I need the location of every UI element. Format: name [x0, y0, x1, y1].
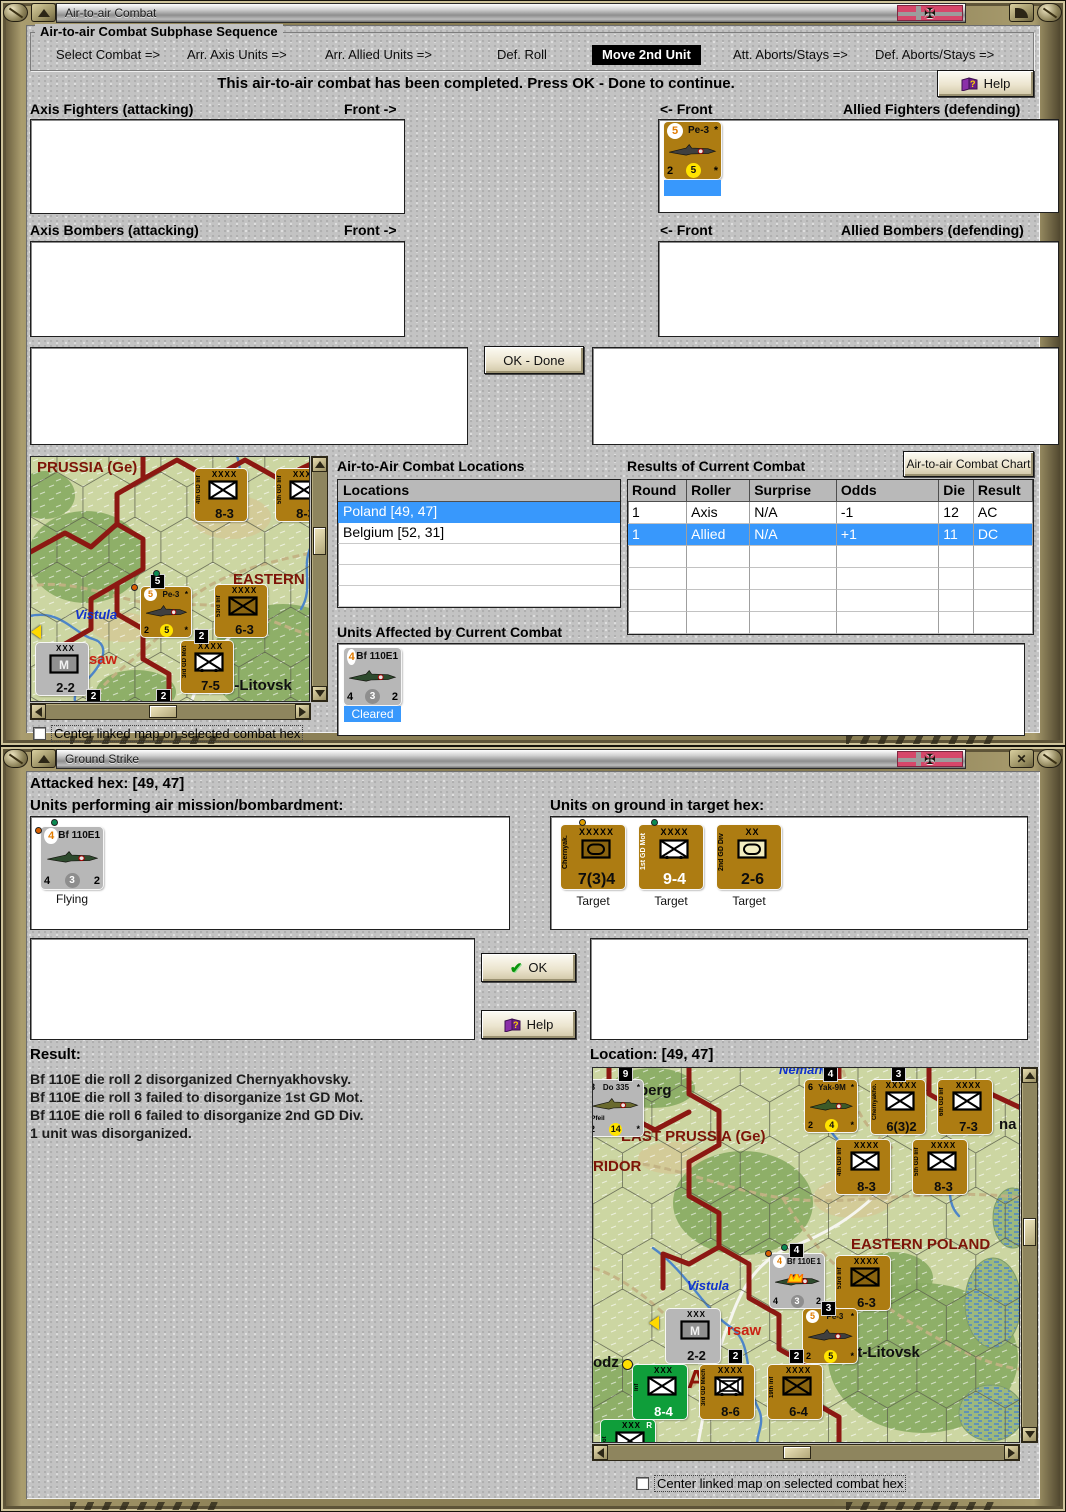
ground-unit-counter-5th-gd-inf[interactable]: XXXX5th GD Inf8-3: [913, 1140, 967, 1194]
mission-units-box[interactable]: 4Bf 110E1432Flying: [30, 816, 510, 930]
air-corner-mark: *: [851, 1083, 854, 1092]
results-col-roller: Roller: [687, 480, 750, 502]
air-strength-circle: 6: [808, 1082, 813, 1092]
ground-unit-counter-2-2[interactable]: XXXM2-2: [666, 1309, 720, 1363]
unit-status-label: Target: [639, 893, 703, 909]
air-range-circle: 4: [825, 1119, 838, 1132]
hex-control-badge: 4: [824, 1068, 837, 1081]
map-vscrollbar[interactable]: [311, 456, 328, 702]
results-col-result: Result: [974, 480, 1033, 502]
air-range-circle: 3: [65, 873, 80, 888]
air-strength-circle: 4: [347, 649, 356, 665]
unit-combat-values: 9-4: [646, 871, 703, 889]
air-attack-value: 4: [44, 875, 50, 887]
unit-symbol-icon: [194, 652, 224, 677]
stack-dot-icon: [781, 1244, 788, 1251]
scroll-thumb[interactable]: [783, 1446, 811, 1459]
combat-hex-map[interactable]: PRUSSIA (Ge)EASTERN PVistularsawst-Litov…: [30, 456, 310, 702]
center-map-checkbox[interactable]: [33, 727, 46, 740]
unit-combat-values: 8-6: [707, 1404, 754, 1419]
unit-status-label: Target: [717, 893, 781, 909]
air-range-circle: 3: [365, 689, 380, 704]
unit-symbol-icon: [208, 480, 238, 505]
air-corner-mark: *: [851, 1312, 854, 1321]
map-hscrollbar[interactable]: [30, 703, 311, 720]
air-unit-counter-pe-3[interactable]: 5Pe-3*25*: [803, 1309, 857, 1363]
hex-control-badge: 4: [790, 1244, 803, 1257]
unit-combat-values: 2-2: [43, 680, 88, 695]
unit-designation: 53rd Inf: [837, 1259, 845, 1297]
air-attack-value: 2: [667, 165, 673, 177]
subphase-step-3[interactable]: Arr. Allied Units =>: [325, 45, 432, 65]
allied-bombers-label: Allied Bombers (defending): [841, 222, 1024, 238]
ok-button[interactable]: ✔ OK: [481, 953, 576, 982]
hex-control-badge: 3: [822, 1302, 835, 1315]
air-combat-client: Air-to-air Combat Subphase Sequence Sele…: [26, 25, 1040, 733]
allied-fighters-label: Allied Fighters (defending): [843, 101, 1020, 117]
air-unit-counter-bf-110e[interactable]: 4Bf 110E1432: [770, 1254, 824, 1308]
air-range-circle: 3: [791, 1295, 804, 1308]
axis-bombers-box[interactable]: [30, 241, 405, 337]
unit-symbol-icon: [659, 839, 689, 864]
unit-size-label: XXXXX: [571, 827, 622, 837]
location-row-empty: [338, 544, 620, 565]
ground-unit-counter-3rd-gd-mot[interactable]: XXXX3rd GD Mot7-5: [181, 641, 233, 693]
help-button-2-label: Help: [527, 1017, 554, 1032]
mission-units-title: Units performing air mission/bombardment…: [30, 797, 343, 814]
strike-hex-map[interactable]: KbergNemanEAST PRUSSIA (Ge)RIDORnaEASTER…: [592, 1067, 1020, 1443]
stack-dot-icon: [51, 819, 58, 826]
help-book-icon: ?: [961, 77, 978, 91]
scroll-thumb[interactable]: [313, 527, 326, 555]
air-move-value: *: [850, 1120, 854, 1130]
screen: Air-to-air Combat ✠ Air-to-air Combat Su…: [0, 0, 1066, 1512]
strike-map-hscrollbar[interactable]: [592, 1444, 1020, 1461]
aircraft-silhouette-icon: [805, 1094, 857, 1118]
unit-designation: Chernyak.: [562, 828, 572, 876]
axis-fighters-box[interactable]: [30, 119, 405, 214]
hex-control-badge: 9: [619, 1068, 632, 1081]
air-unit-name: Pe-3: [688, 125, 709, 136]
window2-ornament-screw: [3, 749, 28, 768]
unit-designation: 53rd Inf: [216, 588, 224, 624]
window-title: Air-to-air Combat: [65, 6, 156, 20]
unit-combat-values: 8-4: [640, 1404, 687, 1419]
air-range-circle: 5: [824, 1350, 837, 1363]
subphase-group-title: Air-to-air Combat Subphase Sequence: [35, 24, 283, 39]
air-unit-counter-pe-3[interactable]: 5Pe-3*25*: [664, 122, 721, 179]
air-unit-name: Pe-3: [162, 590, 179, 599]
air-range-circle: 5: [160, 624, 173, 637]
unit-combat-values: 8-3: [283, 506, 310, 521]
units-affected-box[interactable]: 4Bf 110E1432Cleared: [337, 643, 1025, 736]
unit-symbol-icon: [850, 1151, 880, 1176]
unit-status-label: Cleared: [344, 706, 401, 722]
unit-symbol-icon: [952, 1091, 982, 1116]
center-map-checkbox-label: Center linked map on selected combat hex: [51, 725, 303, 742]
unit-status-label: Target: [561, 893, 625, 909]
ok-button-label: OK: [528, 960, 547, 975]
front-arrow-right-1: Front ->: [344, 101, 397, 117]
air-attack-value: 2: [806, 1351, 811, 1361]
unit-designation: 5th GD Inf: [914, 1143, 922, 1181]
unit-designation: [37, 646, 45, 682]
results-row-empty: [628, 590, 1033, 612]
ground-unit-counter-53rd-inf[interactable]: XXXX53rd Inf6-3: [836, 1256, 890, 1310]
svg-text:?: ?: [513, 1020, 519, 1030]
unit-designation: 4th GD Inf: [837, 1143, 845, 1181]
hex-control-badge: 2: [790, 1350, 803, 1363]
air-unit-name: Bf 110E: [787, 1257, 816, 1266]
combat-complete-message: This air-to-air combat has been complete…: [120, 75, 832, 92]
ground-unit-counter-inf[interactable]: XXXInf8-4: [633, 1365, 687, 1419]
aircraft-silhouette-icon: [770, 1268, 824, 1294]
unit-size-label: XXXX: [286, 470, 310, 479]
ground-unit-counter-chernyak-[interactable]: XXXXXChernyak.7(3)4: [561, 825, 625, 889]
unit-size-label: XXXX: [191, 642, 230, 651]
scroll-arrow-right-icon[interactable]: [295, 704, 310, 719]
air-corner-mark: *: [185, 590, 188, 599]
scroll-arrow-up-icon[interactable]: [1022, 1068, 1037, 1083]
results-col-die: Die: [939, 480, 974, 502]
unit-combat-values: 7-3: [945, 1119, 992, 1134]
air-move-value: 2: [816, 1296, 821, 1306]
unit-symbol-icon: [228, 596, 258, 621]
results-row-1[interactable]: 1AxisN/A-112AC: [628, 502, 1033, 524]
air-unit-counter-bf-110e[interactable]: 4Bf 110E1432: [344, 648, 401, 705]
unit-designation: Inf: [634, 1368, 642, 1406]
german-war-flag-icon: ✠: [897, 5, 963, 21]
ground-unit-counter-6th-gd-inf[interactable]: XXXX6th GD Inf7-3: [938, 1080, 992, 1134]
unit-designation: 4th GD Inf: [196, 472, 204, 508]
unit-size-label: XXXX: [710, 1366, 751, 1375]
unit-combat-values: 6-3: [843, 1295, 890, 1310]
aircraft-silhouette-icon: [41, 844, 103, 872]
results-col-odds: Odds: [837, 480, 939, 502]
subphase-step-1[interactable]: Select Combat =>: [56, 45, 160, 65]
stack-dot-icon: [153, 570, 160, 577]
unit-combat-values: 7-5: [188, 678, 233, 693]
unit-combat-values: 8-3: [920, 1179, 967, 1194]
results-row-empty: [628, 546, 1033, 568]
hex-control-badge: 2: [157, 690, 170, 702]
window2-title: Ground Strike: [65, 752, 139, 766]
unit-symbol-icon: [885, 1091, 915, 1116]
frame2-hatch-left: [70, 1502, 220, 1510]
scroll-arrow-down-icon[interactable]: [1022, 1427, 1037, 1442]
aircraft-silhouette-icon: [664, 139, 721, 162]
ground-unit-counter-4th-gd-inf[interactable]: XXXX4th GD Inf8-3: [836, 1140, 890, 1194]
air-unit-subname: Pfeil: [592, 1115, 643, 1122]
unit-status-label: [664, 180, 721, 196]
result-line-1: Bf 110E die roll 2 disorganized Chernyak…: [30, 1071, 351, 1087]
window2-titlebar[interactable]: Ground Strike ✠: [56, 749, 966, 769]
air-unit-name: Yak-9M: [818, 1083, 846, 1092]
hex-control-badge: 2: [195, 630, 208, 643]
air-strength-circle: 5: [806, 1310, 819, 1323]
ground-unit-counter-2nd-gd-div[interactable]: XX2nd GD Div2-6: [717, 825, 781, 889]
strike-left-box[interactable]: [30, 938, 475, 1040]
window2-shade-button[interactable]: [31, 749, 56, 768]
ground-unit-counter-mot[interactable]: XXXRMot8-4: [601, 1420, 655, 1443]
combat-chart-label: Air-to-air Combat Chart: [906, 457, 1030, 471]
unit-size-label: XXX: [46, 644, 85, 653]
unit-designation: 3rd GD Mot: [182, 644, 190, 680]
air-unit-name: Bf 110E: [58, 830, 94, 841]
combat-chart-button[interactable]: Air-to-air Combat Chart: [903, 451, 1034, 477]
result-title: Result:: [30, 1046, 81, 1063]
scroll-thumb[interactable]: [1023, 1218, 1036, 1246]
unit-symbol-icon: [581, 839, 611, 864]
center-map-checkbox-2-label: Center linked map on selected combat hex: [654, 1475, 906, 1492]
subphase-step-7[interactable]: Def. Aborts/Stays =>: [875, 45, 994, 65]
unit-combat-values: 6-3: [222, 622, 267, 637]
air-combat-window: Air-to-air Combat ✠ Air-to-air Combat Su…: [0, 0, 1066, 746]
unit-size-label: XXXX: [846, 1141, 887, 1150]
ground-unit-counter-53rd-inf[interactable]: XXXX53rd Inf6-3: [215, 585, 267, 637]
ground-unit-counter-4th-gd-inf[interactable]: XXXX4th GD Inf8-3: [195, 469, 247, 521]
front-arrow-left-1: <- Front: [660, 101, 713, 117]
unit-designation: 19th Inf: [769, 1368, 777, 1406]
air-attack-value: 2: [808, 1120, 813, 1130]
result-line-3: Bf 110E die roll 6 failed to disorganize…: [30, 1107, 363, 1123]
unit-combat-values: 8-3: [202, 506, 247, 521]
unit-size-label: XXXX: [846, 1257, 887, 1266]
unit-size-label: XXXX: [778, 1366, 819, 1375]
air-unit-counter-yak-9m[interactable]: 6Yak-9M*24*: [805, 1080, 857, 1132]
subphase-step-2[interactable]: Arr. Axis Units =>: [187, 45, 287, 65]
air-strength-circle: 5: [144, 588, 157, 601]
air-strength-circle: 8: [592, 1082, 595, 1092]
subphase-step-4[interactable]: Def. Roll: [497, 45, 547, 65]
hex-control-badge: 2: [729, 1350, 742, 1363]
location-row-1[interactable]: Poland [49, 47]: [338, 502, 620, 523]
unit-size-label: XX: [727, 827, 778, 837]
scroll-thumb[interactable]: [149, 705, 177, 718]
unit-symbol-icon: M: [49, 654, 79, 679]
help-button-2[interactable]: ? Help: [481, 1010, 576, 1039]
air-attack-value: 4: [347, 691, 353, 703]
scroll-arrow-up-icon[interactable]: [312, 457, 327, 472]
unit-combat-values: 6(3)2: [878, 1119, 925, 1134]
results-header-row: RoundRollerSurpriseOddsDieResult: [628, 480, 1033, 502]
air-attack-value: 2: [144, 625, 149, 635]
air-move-value: 2: [94, 875, 100, 887]
unit-designation: 5th GD Inf: [277, 472, 285, 508]
help-book-icon-2: ?: [504, 1018, 521, 1032]
air-corner-mark: 1: [817, 1257, 821, 1266]
air-unit-name: Bf 110E: [356, 651, 392, 662]
center-map-checkbox-row-2: Center linked map on selected combat hex: [636, 1475, 906, 1492]
front-arrow-left-2: <- Front: [660, 222, 713, 238]
ground-unit-counter-1st-gd-mot[interactable]: XXXX1st GD Mot9-4: [639, 825, 703, 889]
locations-title: Air-to-Air Combat Locations: [337, 458, 524, 474]
unit-designation: 3rd GD Mech: [701, 1368, 709, 1406]
unit-designation: 2nd GD Div: [718, 828, 728, 876]
unit-size-label: XXXX: [948, 1081, 989, 1090]
stack-dot-icon: [35, 827, 42, 834]
ground-unit-counter-3rd-gd-mech[interactable]: XXXX3rd GD Mech8-6: [700, 1365, 754, 1419]
stack-dot-icon: [651, 819, 658, 826]
hex-control-badge: 2: [87, 690, 100, 702]
center-map-checkbox-row: Center linked map on selected combat hex: [33, 725, 303, 742]
scroll-arrow-down-icon[interactable]: [312, 686, 327, 701]
air-unit-counter-bf-110e[interactable]: 4Bf 110E1432: [41, 827, 103, 889]
air-strength-circle: 5: [667, 123, 683, 139]
front-arrow-right-2: Front ->: [344, 222, 397, 238]
location-label: Location: [49, 47]: [590, 1046, 713, 1063]
result-line-4: 1 unit was disorganized.: [30, 1125, 192, 1141]
unit-designation: 1st GD Mot: [640, 828, 650, 876]
air-move-value: *: [636, 1124, 640, 1134]
location-row-empty: [338, 586, 620, 607]
window2-close-button[interactable]: ✕: [1009, 749, 1034, 768]
air-attack-value: 2: [592, 1124, 595, 1134]
air-corner-mark: *: [637, 1083, 640, 1092]
results-title: Results of Current Combat: [627, 458, 805, 474]
ground-unit-counter-19th-inf[interactable]: XXXX19th Inf6-4: [768, 1365, 822, 1419]
unit-symbol-icon: [850, 1267, 880, 1292]
city-dot-icon: [622, 1359, 633, 1370]
attacked-hex-label: Attacked hex: [49, 47]: [30, 775, 184, 792]
air-attack-value: 4: [773, 1296, 778, 1306]
help-button-label: Help: [984, 76, 1011, 91]
strike-map-vscrollbar[interactable]: [1021, 1067, 1038, 1443]
scroll-arrow-left-icon[interactable]: [31, 704, 46, 719]
ground-units-box[interactable]: XXXXXChernyak.7(3)4TargetXXXX1st GD Mot9…: [550, 816, 1028, 930]
unit-designation: Mot: [602, 1423, 610, 1443]
location-row-2[interactable]: Belgium [52, 31]: [338, 523, 620, 544]
window2-ornament-screw-right: [1037, 749, 1062, 768]
window-titlebar[interactable]: Air-to-air Combat ✠: [56, 3, 966, 23]
ground-strike-client: Attacked hex: [49, 47] Units performing …: [26, 771, 1040, 1499]
window-shade-button[interactable]: [31, 3, 56, 22]
unit-combat-values: 2-2: [673, 1348, 720, 1363]
frame-hatch-right: [846, 736, 996, 744]
strike-right-box[interactable]: [590, 938, 1028, 1040]
ground-unit-counter-5th-gd-inf[interactable]: XXXX5th GD Inf8-3: [276, 469, 310, 521]
hex-control-badge: 5: [151, 575, 164, 588]
units-affected-title: Units Affected by Current Combat: [337, 624, 562, 640]
unit-symbol-icon: [714, 1376, 744, 1401]
unit-symbol-icon: [927, 1151, 957, 1176]
locations-header: Locations: [338, 480, 620, 502]
axis-bombers-label: Axis Bombers (attacking): [30, 222, 199, 238]
offmap-chevron-icon: [31, 625, 41, 639]
ground-unit-counter-chernyakho-[interactable]: XXXXXChernyakho.6(3)2: [871, 1080, 925, 1134]
stack-dot-icon: [765, 1250, 772, 1257]
ground-strike-window: Ground Strike ✠ ✕ Attacked hex: [49, 47]…: [0, 746, 1066, 1512]
air-unit-counter-pe-3[interactable]: 5Pe-3*25*: [141, 587, 191, 637]
hex-control-badge: 3: [892, 1068, 905, 1081]
unit-symbol-icon: [615, 1431, 645, 1443]
unit-size-label: XXX: [676, 1310, 717, 1319]
results-row-2[interactable]: 1AlliedN/A+111DC: [628, 524, 1033, 546]
unit-size-label: XXXX: [225, 586, 264, 595]
aircraft-silhouette-icon: [141, 601, 191, 623]
air-unit-name: Do 335: [603, 1083, 629, 1092]
air-range-circle: 14: [609, 1123, 622, 1136]
results-col-round: Round: [628, 480, 687, 502]
unit-designation: 6th GD Inf: [939, 1083, 947, 1121]
unit-symbol-icon: [289, 480, 310, 505]
unit-size-label: XXXX: [205, 470, 244, 479]
ground-unit-counter-2-2[interactable]: XXXM2-2: [36, 643, 88, 695]
window-minimize-button[interactable]: [1009, 3, 1034, 22]
aircraft-silhouette-icon: [592, 1094, 643, 1115]
results-row-empty: [628, 612, 1033, 634]
unit-size-label: XXXX: [649, 827, 700, 837]
subphase-step-6[interactable]: Att. Aborts/Stays =>: [733, 45, 848, 65]
unit-size-label: XXXXX: [881, 1081, 922, 1090]
air-corner-mark: 1: [94, 830, 100, 841]
air-corner-mark: 1: [392, 651, 398, 662]
unit-combat-values: 6-4: [775, 1404, 822, 1419]
ok-check-icon: ✔: [510, 959, 523, 977]
air-move-value: 2: [392, 691, 398, 703]
aircraft-silhouette-icon: [803, 1323, 857, 1349]
help-button[interactable]: ? Help: [937, 70, 1034, 97]
unit-symbol-icon: [647, 1376, 677, 1401]
window-ornament-screw: [3, 3, 28, 22]
allied-message-box[interactable]: [592, 347, 1059, 445]
svg-text:M: M: [690, 1324, 700, 1338]
allied-bombers-box[interactable]: [658, 241, 1059, 337]
unit-designation: [667, 1312, 675, 1350]
air-corner-mark: *: [714, 125, 718, 136]
center-map-checkbox-2[interactable]: [636, 1477, 649, 1490]
offmap-chevron-icon: [649, 1316, 659, 1330]
axis-fighters-label: Axis Fighters (attacking): [30, 101, 193, 117]
unit-corner-mark: R: [646, 1421, 652, 1430]
ground-units-title: Units on ground in target hex:: [550, 797, 764, 814]
scroll-arrow-right-icon[interactable]: [1004, 1445, 1019, 1460]
svg-text:M: M: [59, 658, 69, 672]
unit-combat-values: 2-6: [724, 871, 781, 889]
ok-done-label: OK - Done: [503, 353, 564, 368]
results-table[interactable]: RoundRollerSurpriseOddsDieResult1AxisN/A…: [627, 479, 1034, 635]
location-row-empty: [338, 565, 620, 586]
air-move-value: *: [714, 165, 718, 177]
subphase-step-5[interactable]: Move 2nd Unit: [592, 45, 701, 65]
air-strength-circle: 4: [44, 828, 58, 844]
air-unit-counter-do-335[interactable]: 8Do 335*Pfeil214*: [592, 1080, 643, 1136]
results-col-surprise: Surprise: [750, 480, 837, 502]
air-move-value: *: [850, 1351, 854, 1361]
scroll-arrow-left-icon[interactable]: [593, 1445, 608, 1460]
stack-dot-icon: [131, 584, 138, 591]
unit-symbol-icon: [782, 1376, 812, 1401]
frame2-hatch-right: [846, 1502, 996, 1510]
air-move-value: *: [184, 625, 188, 635]
unit-size-label: XXX: [643, 1366, 684, 1375]
air-strength-circle: 4: [773, 1255, 786, 1268]
unit-symbol-icon: [737, 839, 767, 864]
svg-text:?: ?: [970, 79, 976, 89]
aircraft-silhouette-icon: [344, 665, 401, 688]
results-row-empty: [628, 568, 1033, 590]
locations-list[interactable]: LocationsPoland [49, 47]Belgium [52, 31]: [337, 479, 621, 608]
allied-fighters-box[interactable]: 5Pe-3*25*: [658, 119, 1059, 213]
unit-symbol-icon: M: [680, 1320, 710, 1345]
stack-dot-icon: [579, 819, 586, 826]
unit-size-label: XXXX: [923, 1141, 964, 1150]
air-range-circle: 5: [686, 163, 701, 178]
ok-done-button[interactable]: OK - Done: [484, 346, 584, 374]
result-line-2: Bf 110E die roll 3 failed to disorganize…: [30, 1089, 363, 1105]
german-war-flag-icon-2: ✠: [897, 751, 963, 767]
axis-message-box[interactable]: [30, 347, 468, 445]
